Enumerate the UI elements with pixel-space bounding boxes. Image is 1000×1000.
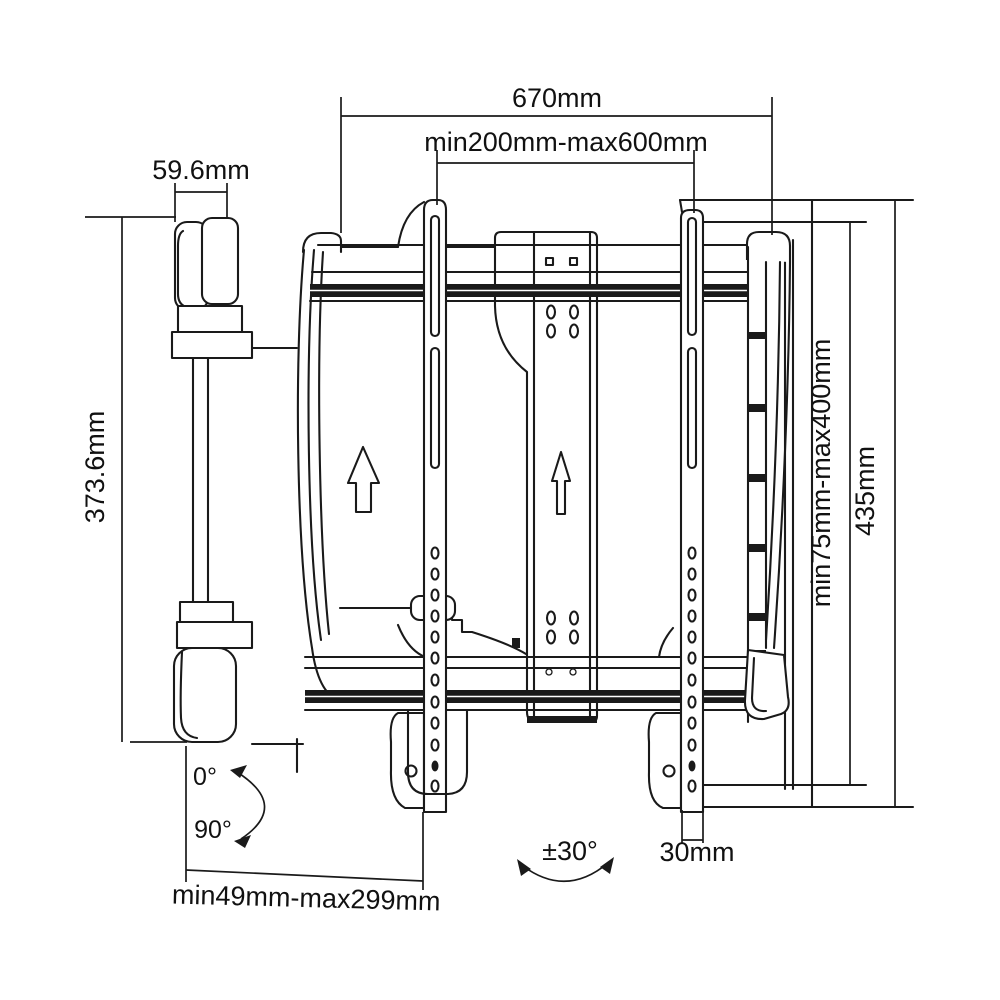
dim-rail-width-label: 30mm [659, 837, 734, 867]
up-arrow-large-icon [348, 447, 379, 512]
panel-plate [298, 202, 526, 700]
swivel-angle-label: ±30° [542, 836, 598, 866]
tilt-min-label: 0° [193, 763, 217, 791]
dim-arm-height-label: 373.6mm [80, 411, 110, 524]
wall-arm [172, 218, 303, 772]
hook-bracket [745, 232, 790, 722]
dim-arm-thickness-label: 59.6mm [152, 155, 250, 185]
mount-dimension-diagram: 670mm min200mm-max600mm 59.6mm 373.6mm m… [0, 0, 1000, 1000]
dim-bracket-height-label: 435mm [850, 446, 880, 536]
dim-vesa-width-label: min200mm-max600mm [424, 127, 708, 157]
dim-vesa-height-label: min75mm-max400mm [806, 339, 836, 608]
tilt-arc-icon [230, 765, 265, 848]
wall-plate-column [495, 232, 597, 723]
tilt-max-label: 90° [194, 816, 232, 844]
dim-total-width-label: 670mm [512, 83, 602, 113]
diagram-canvas: 670mm min200mm-max600mm 59.6mm 373.6mm m… [0, 0, 1000, 1000]
dim-extension-range-label: min49mm-max299mm [172, 879, 441, 916]
